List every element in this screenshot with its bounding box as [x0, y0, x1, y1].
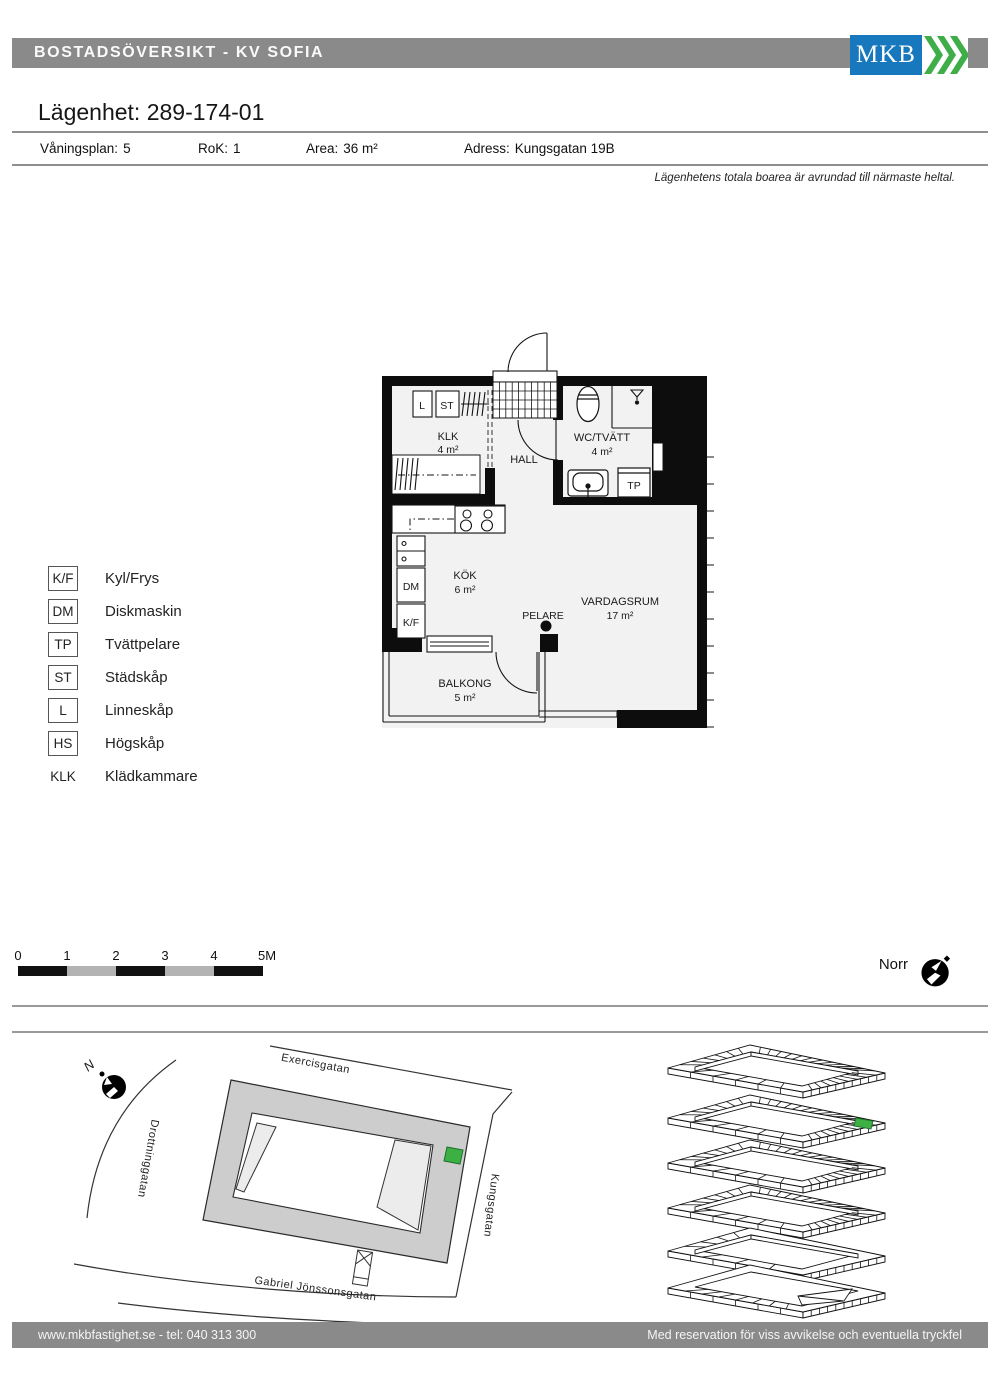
footer-disclaimer: Med reservation för viss avvikelse och e… [647, 1328, 962, 1342]
legend-abbr: L [48, 698, 78, 723]
info-label: RoK: [198, 141, 228, 156]
legend-item: DM Diskmaskin [48, 599, 198, 624]
divider [12, 164, 988, 166]
info-label: Area: [306, 141, 338, 156]
apartment-highlight [444, 1147, 463, 1164]
label-tvattpelare: TP [627, 480, 640, 492]
legend-label: Diskmaskin [105, 603, 182, 620]
scale-tick-5: 5M [258, 948, 276, 963]
site-compass-icon [100, 1072, 127, 1100]
scale-bar [18, 966, 263, 976]
apartment-overview-sheet: { "header": { "title": "BOSTADSÖVERSIKT … [0, 0, 1000, 1400]
legend-abbr: DM [48, 599, 78, 624]
street-label-kungsgatan: Kungsgatan [481, 1173, 501, 1238]
site-north-label: N [81, 1056, 98, 1074]
balcony-window [427, 636, 492, 652]
room-label-balkong: BALKONG [438, 678, 491, 690]
legend: K/F Kyl/Frys DM Diskmaskin TP Tvättpelar… [48, 566, 198, 789]
info-area: Area:36 m² [306, 141, 378, 156]
legend-label: Klädkammare [105, 768, 198, 785]
info-value: Kungsgatan 19B [515, 141, 615, 156]
legend-item: L Linneskåp [48, 698, 198, 723]
header-bar: BOSTADSÖVERSIKT - KV SOFIA [12, 38, 988, 68]
entry-door [493, 333, 557, 382]
room-area-balkong: 5 m² [455, 692, 477, 704]
floor-stack-diagram [650, 1035, 980, 1320]
room-label-hall: HALL [510, 454, 538, 466]
street-label-drottninggatan: Drottninggatan [135, 1118, 161, 1198]
street-label-exercisgatan: Exercisgatan [280, 1052, 351, 1076]
room-area-kok: 6 m² [455, 584, 477, 596]
north-label: Norr [842, 956, 908, 973]
floorplan-drawing: KLK 4 m² HALL WC/TVÄTT 4 m² KÖK 6 m² VAR… [370, 320, 720, 740]
divider [12, 1031, 988, 1033]
legend-item: KLK Klädkammare [48, 764, 198, 789]
room-area-vardagsrum: 17 m² [607, 610, 634, 622]
legend-label: Linneskåp [105, 702, 173, 719]
info-value: 1 [233, 141, 241, 156]
toilet-icon [577, 387, 599, 422]
legend-label: Högskåp [105, 735, 164, 752]
legend-item: TP Tvättpelare [48, 632, 198, 657]
mkb-chevrons-icon [922, 35, 968, 75]
legend-abbr: HS [48, 731, 78, 756]
legend-label: Tvättpelare [105, 636, 180, 653]
legend-label: Kyl/Frys [105, 570, 159, 587]
info-rok: RoK:1 [198, 141, 241, 156]
info-value: 5 [123, 141, 131, 156]
label-diskmaskin: DM [403, 581, 419, 593]
footer-contact: www.mkbfastighet.se - tel: 040 313 300 [38, 1328, 256, 1342]
info-value: 36 m² [343, 141, 378, 156]
legend-abbr: ST [48, 665, 78, 690]
pelare-column [540, 634, 558, 652]
sink-icon [568, 470, 608, 497]
scale-tick-2: 2 [112, 948, 119, 963]
info-vaningsplan: Våningsplan:5 [40, 141, 131, 156]
north-compass-icon [916, 950, 956, 990]
label-kylfrys: K/F [403, 617, 419, 629]
scale-tick-4: 4 [210, 948, 217, 963]
room-label-kok: KÖK [453, 570, 477, 582]
legend-item: K/F Kyl/Frys [48, 566, 198, 591]
info-label: Våningsplan: [40, 141, 118, 156]
legend-item: HS Högskåp [48, 731, 198, 756]
mkb-logo-text: MKB [850, 35, 922, 75]
divider [12, 1005, 988, 1007]
wall-niche [653, 443, 663, 471]
divider [12, 131, 988, 133]
gate [352, 1250, 372, 1286]
room-label-wc: WC/TVÄTT [574, 432, 630, 444]
room-area-klk: 4 m² [438, 444, 460, 456]
site-map: N Exercisgatan Drottninggatan Kungsgatan… [60, 1040, 550, 1315]
footer-bar: www.mkbfastighet.se - tel: 040 313 300 M… [12, 1322, 988, 1348]
label-linneskap: L [419, 400, 425, 412]
info-label: Adress: [464, 141, 510, 156]
scale-tick-1: 1 [63, 948, 70, 963]
legend-abbr: TP [48, 632, 78, 657]
label-pelare: PELARE [522, 610, 563, 622]
stove-icon [455, 506, 505, 533]
room-area-wc: 4 m² [592, 446, 614, 458]
scale-tick-0: 0 [14, 948, 21, 963]
room-label-vardagsrum: VARDAGSRUM [581, 596, 659, 608]
label-stadskap: ST [440, 400, 454, 412]
dimension-ticks [707, 457, 714, 727]
legend-abbr: K/F [48, 566, 78, 591]
pelare-dot [541, 621, 552, 632]
page-title: Lägenhet: 289-174-01 [38, 99, 264, 126]
room-label-klk: KLK [438, 431, 459, 443]
info-adress: Adress:Kungsgatan 19B [464, 141, 615, 156]
disclaimer-note: Lägenhetens totala boarea är avrundad ti… [12, 172, 955, 184]
legend-abbr: KLK [48, 764, 78, 789]
legend-label: Städskåp [105, 669, 168, 686]
legend-item: ST Städskåp [48, 665, 198, 690]
scale-tick-3: 3 [161, 948, 168, 963]
mkb-logo: MKB [850, 35, 968, 75]
